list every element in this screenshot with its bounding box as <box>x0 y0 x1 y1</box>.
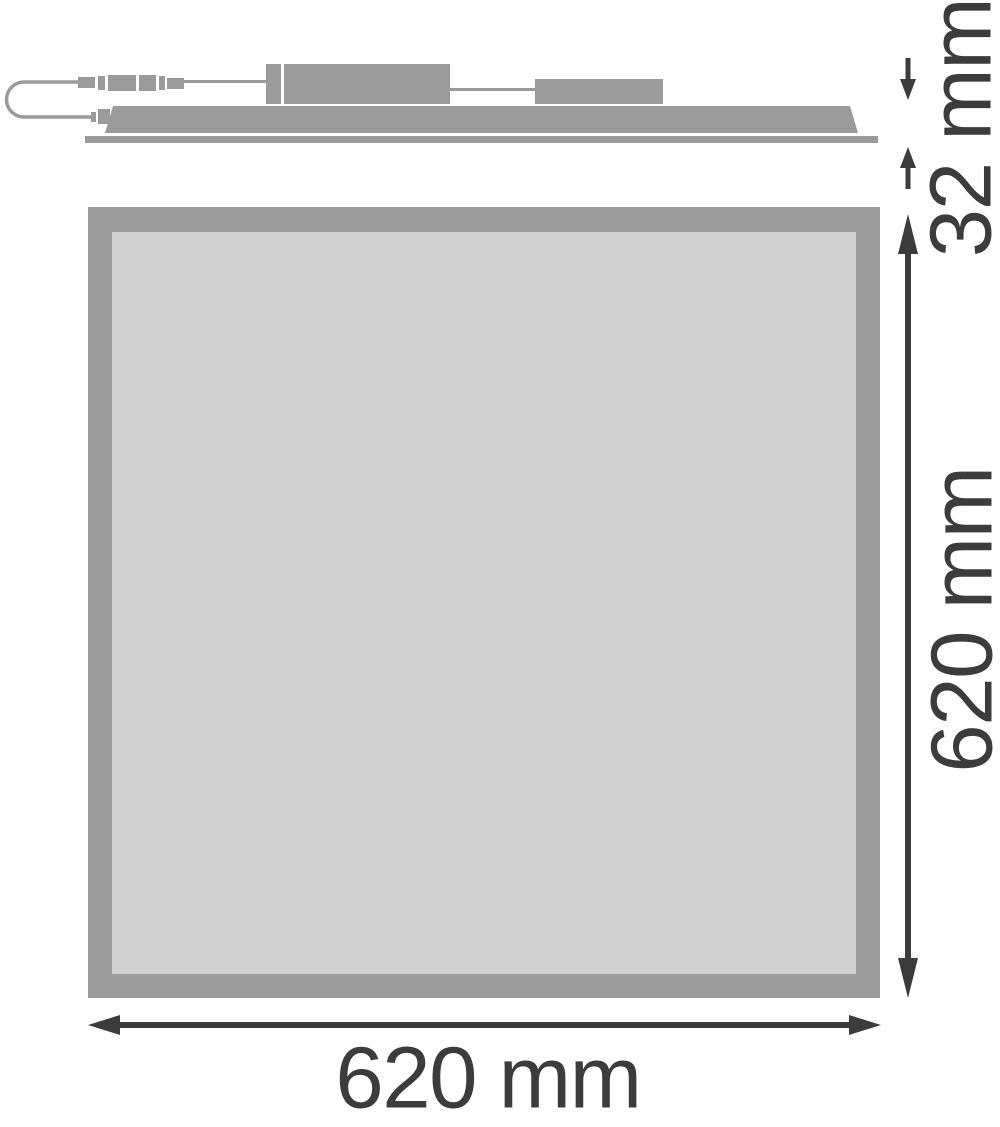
front-view <box>88 207 880 998</box>
dimension-line <box>905 250 911 962</box>
dimension-drawing: 32 mm 620 mm 620 mm <box>0 0 1000 1118</box>
arrow-head-down-icon <box>898 958 918 998</box>
dimension-line <box>118 1022 850 1028</box>
driver-box-end-cap <box>266 64 281 104</box>
panel-face <box>112 232 856 974</box>
arrow-shaft <box>906 165 911 189</box>
luminaire-drawing-svg <box>0 0 1000 1118</box>
connector-segment <box>167 78 184 89</box>
wire-to-driver <box>184 80 266 83</box>
panel-height-label: 620 mm <box>919 467 1000 772</box>
driver-box-large <box>284 64 450 104</box>
connector-segment <box>78 77 95 88</box>
driver-box-small <box>535 79 663 104</box>
connector-segment <box>159 76 165 90</box>
panel-body-profile <box>105 106 858 133</box>
profile-height-label: 32 mm <box>918 0 1000 257</box>
wire-between-drivers <box>450 88 535 91</box>
connector-segment <box>139 75 156 91</box>
panel-width-label: 620 mm <box>335 1035 640 1122</box>
profile-view <box>7 64 879 143</box>
cable-plug-body <box>98 109 110 124</box>
panel-flange-profile <box>85 136 878 143</box>
arrow-shaft <box>906 58 911 82</box>
arrow-head-left-icon <box>88 1015 120 1035</box>
inline-connector <box>78 75 184 91</box>
connector-segment <box>108 75 136 91</box>
arrow-head-right-icon <box>849 1015 881 1035</box>
cable-plug-pin <box>91 112 96 122</box>
connector-segment <box>98 76 105 90</box>
